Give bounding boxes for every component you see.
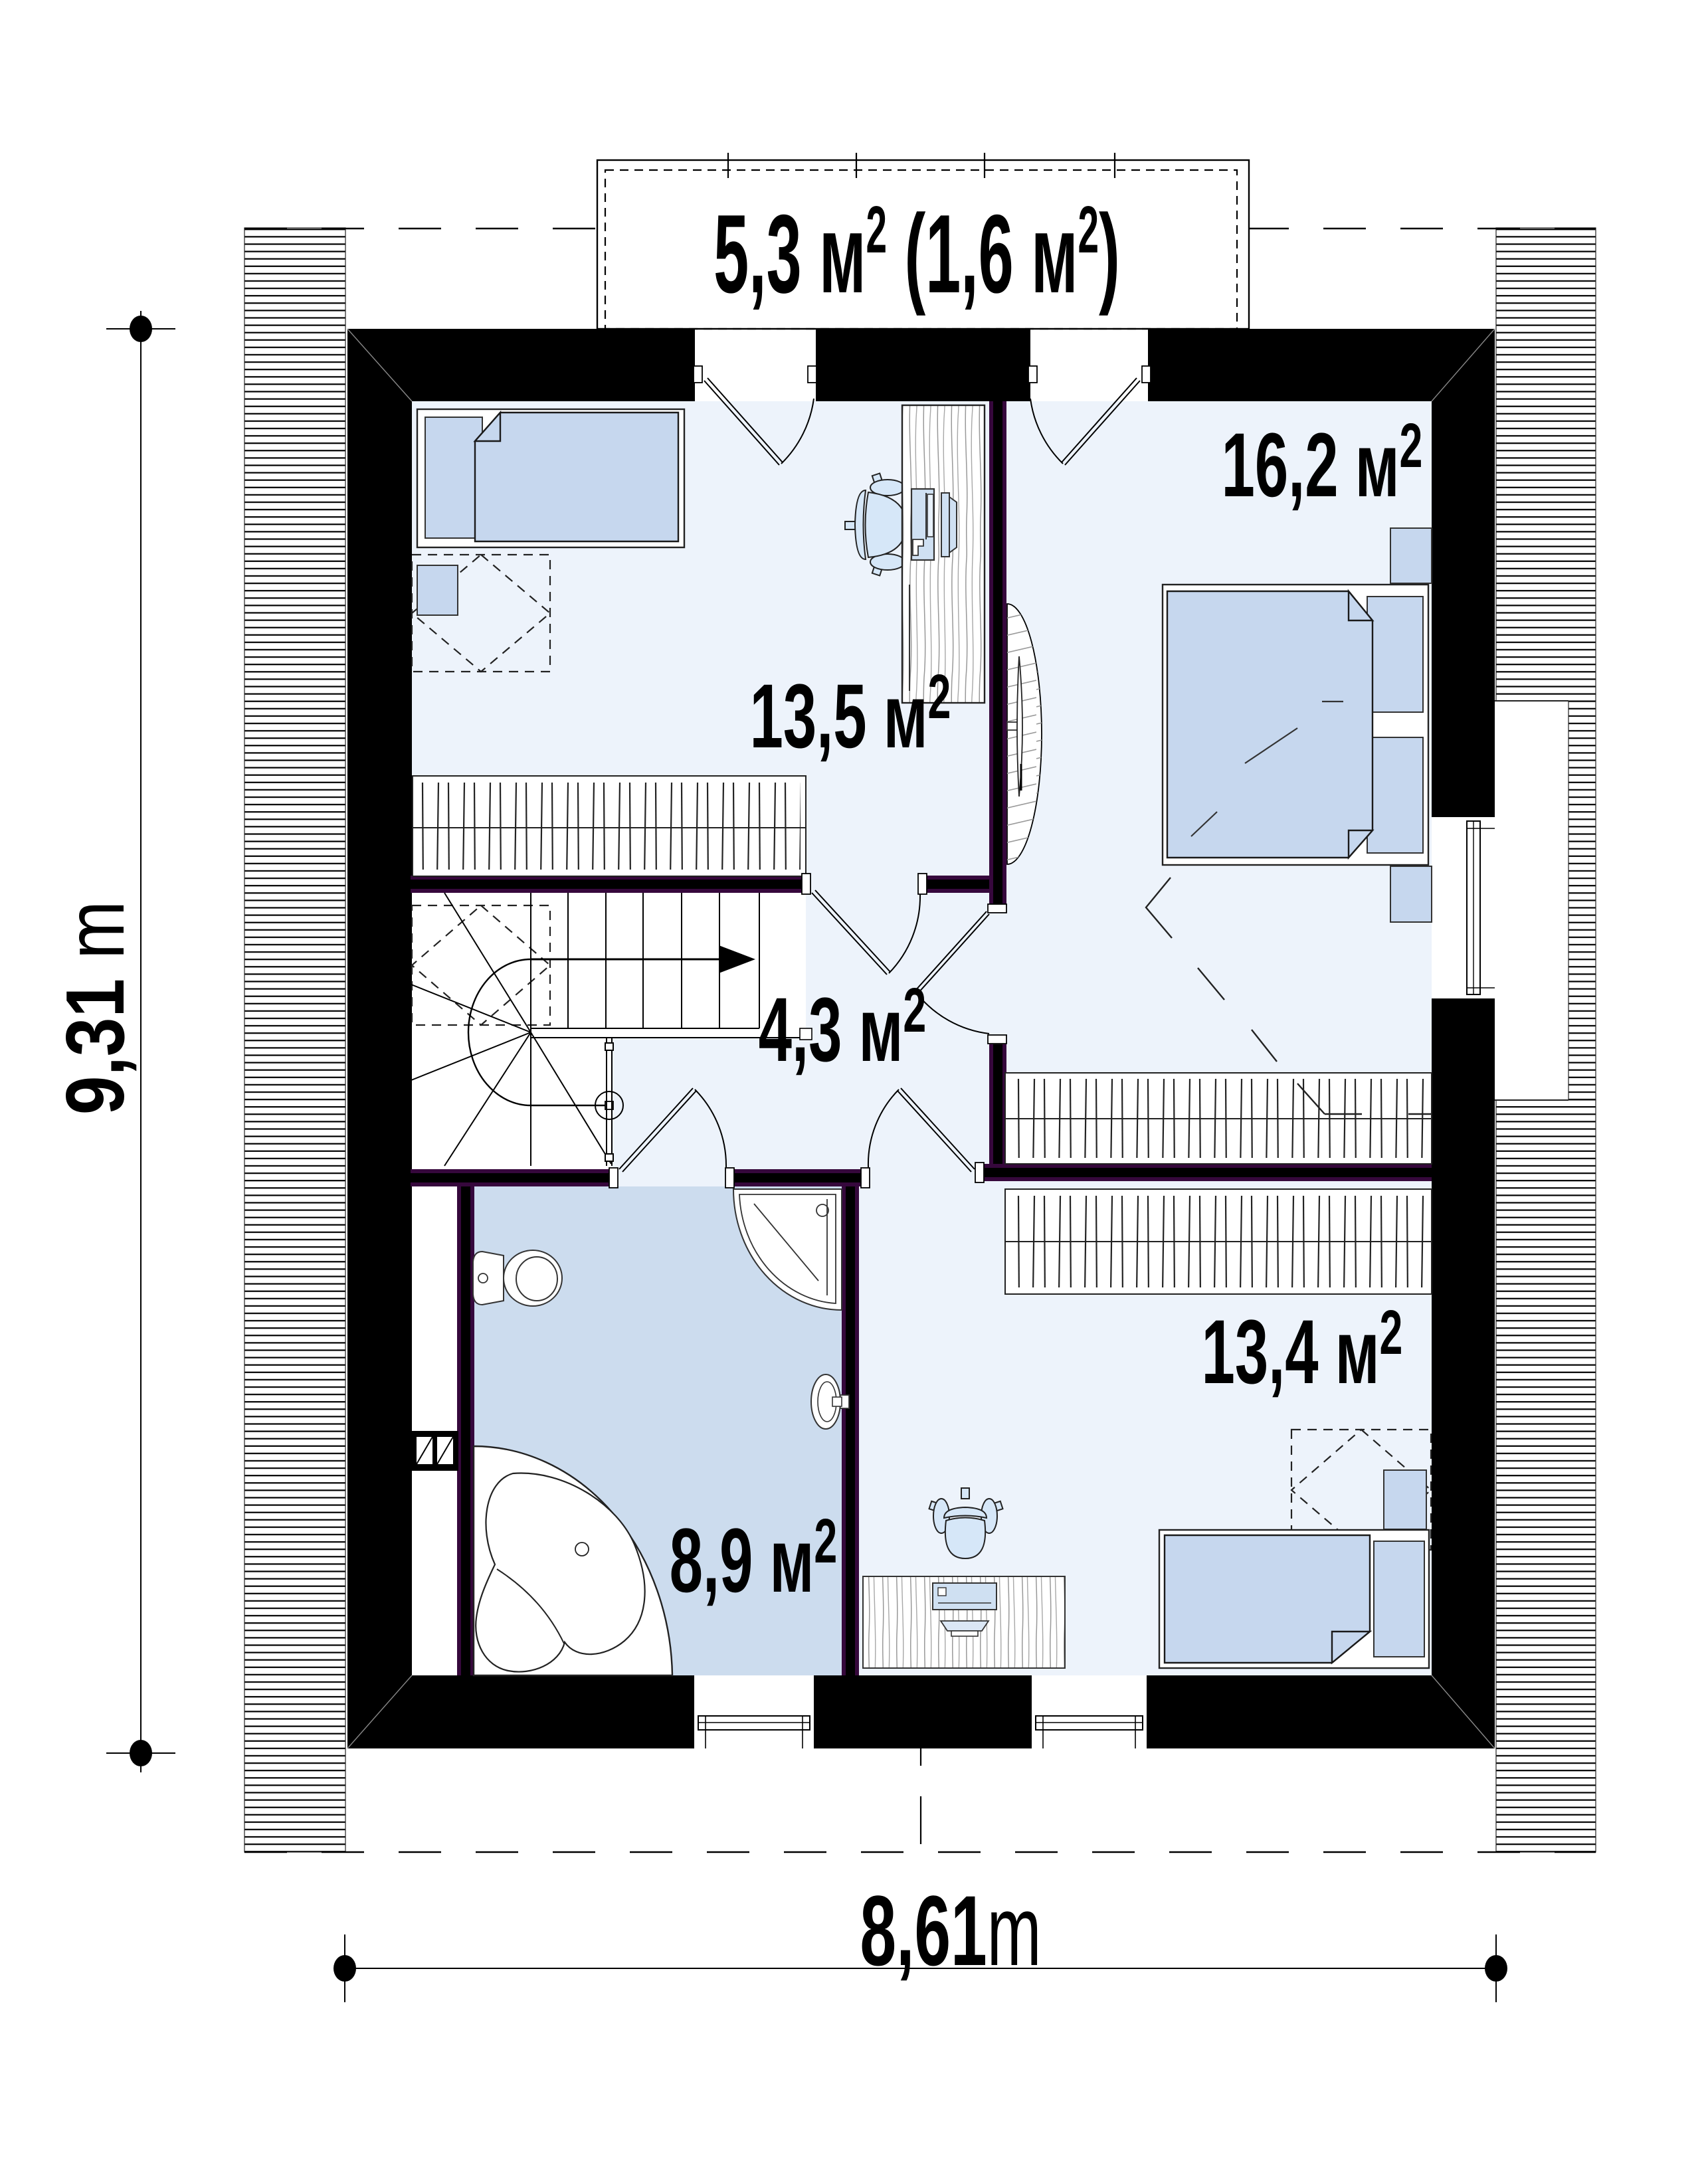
svg-text:13,5 м2: 13,5 м2 [750, 662, 951, 767]
svg-text:13,4 м2: 13,4 м2 [1202, 1297, 1403, 1402]
svg-text:8,61m: 8,61m [860, 1875, 1041, 1986]
svg-text:4,3 м2: 4,3 м2 [759, 975, 927, 1080]
svg-text:9,31 m: 9,31 m [50, 901, 142, 1115]
svg-text:5,3 м2 (1,6 м2): 5,3 м2 (1,6 м2) [713, 191, 1120, 316]
svg-text:16,2 м2: 16,2 м2 [1222, 411, 1423, 516]
svg-text:8,9 м2: 8,9 м2 [670, 1506, 838, 1611]
